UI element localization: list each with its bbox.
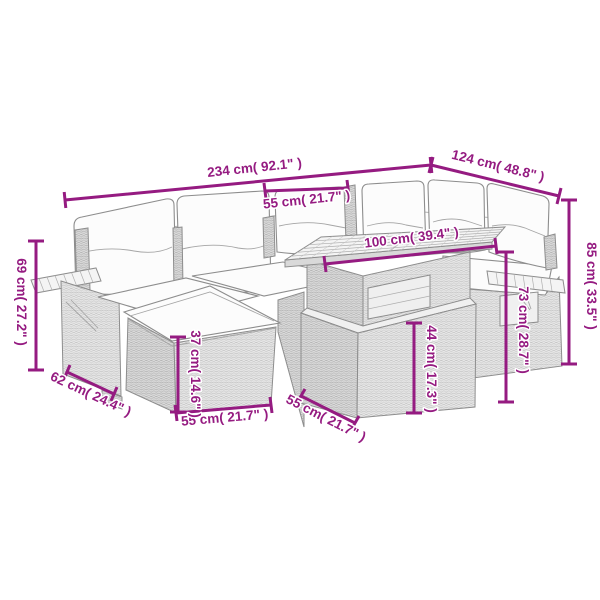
- dimension-label: 234 cm( 92.1" ): [207, 155, 303, 180]
- dim-total-height: 85 cm( 33.5" ): [561, 200, 599, 364]
- furniture-diagram-canvas: 234 cm( 92.1" ) 124 cm( 48.8" ) 55 cm( 2…: [0, 0, 600, 600]
- dimension-label: 73 cm( 28.7" ): [516, 286, 531, 373]
- dimension-label: 44 cm( 17.3" ): [424, 325, 439, 412]
- sofa-line-art: [31, 180, 565, 427]
- dimension-label: 124 cm( 48.8" ): [450, 147, 546, 185]
- dim-arm-shelf-height: 69 cm( 27.2" ): [14, 241, 44, 370]
- dimension-label: 37 cm( 14.6" ): [188, 330, 203, 417]
- product-dimension-diagram: 234 cm( 92.1" ) 124 cm( 48.8" ) 55 cm( 2…: [0, 0, 600, 600]
- dimension-label: 69 cm( 27.2" ): [14, 258, 29, 345]
- dimension-label: 85 cm( 33.5" ): [584, 242, 599, 329]
